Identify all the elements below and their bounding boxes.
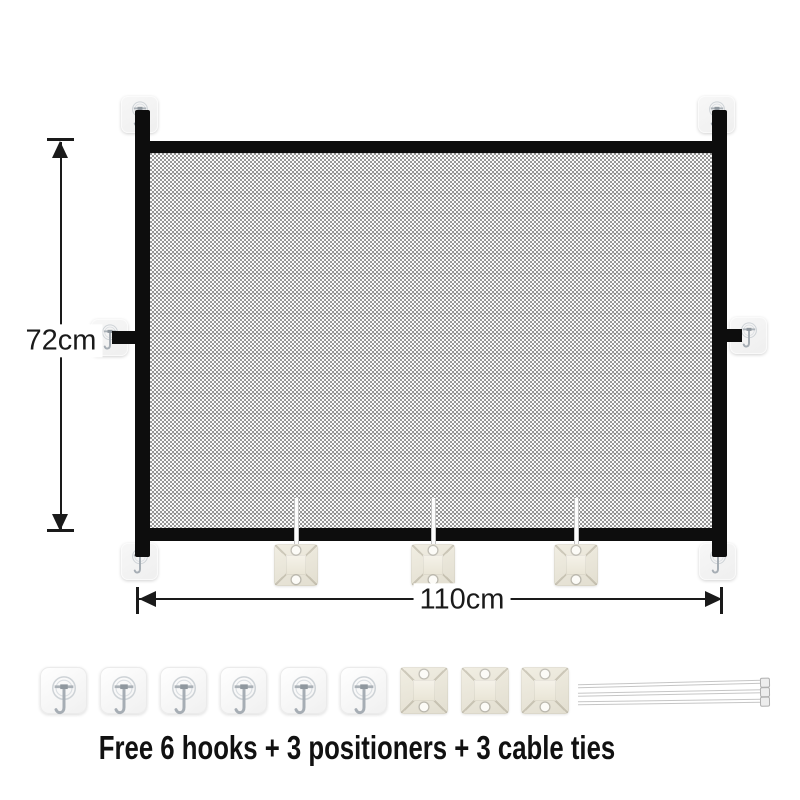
arrow-down-icon — [52, 514, 68, 531]
free-cable-tie-item-1 — [578, 680, 762, 688]
gate-positioner-2 — [411, 544, 455, 586]
positioner-icon — [411, 544, 455, 586]
hook-icon — [289, 674, 319, 721]
height-dimension-label: 72cm — [20, 324, 103, 357]
free-hook-item-5 — [280, 667, 327, 714]
caption: Free 6 hooks + 3 positioners + 3 cable t… — [99, 729, 615, 767]
free-positioner-item-3 — [521, 667, 569, 714]
hook-icon — [229, 674, 259, 721]
hook-icon — [349, 674, 379, 721]
hook-icon — [109, 674, 139, 721]
arrow-left-icon — [139, 591, 156, 607]
hook-icon — [49, 674, 79, 721]
free-positioner-item-1 — [400, 667, 448, 714]
positioner-icon — [274, 544, 318, 586]
free-hook-item-3 — [160, 667, 207, 714]
free-cable-tie-item-2 — [578, 689, 762, 697]
width-dimension-label: 110cm — [414, 583, 511, 616]
gate-positioner-1 — [274, 544, 318, 586]
mesh-panel — [136, 141, 727, 541]
free-hook-item-4 — [220, 667, 267, 714]
free-cable-tie-item-3 — [578, 699, 762, 706]
frame-stub-left — [112, 331, 140, 344]
free-hook-item-6 — [340, 667, 387, 714]
free-hook-item-2 — [100, 667, 147, 714]
positioner-icon — [554, 544, 598, 586]
free-positioner-item-2 — [461, 667, 509, 714]
gate-positioner-3 — [554, 544, 598, 586]
free-hook-item-1 — [40, 667, 87, 714]
product-illustration: 72cm 110cm Free 6 hooks + 3 positioners … — [0, 0, 800, 800]
hook-icon — [169, 674, 199, 721]
arrow-right-icon — [705, 591, 722, 607]
arrow-up-icon — [52, 141, 68, 158]
frame-stub-right — [720, 329, 742, 342]
